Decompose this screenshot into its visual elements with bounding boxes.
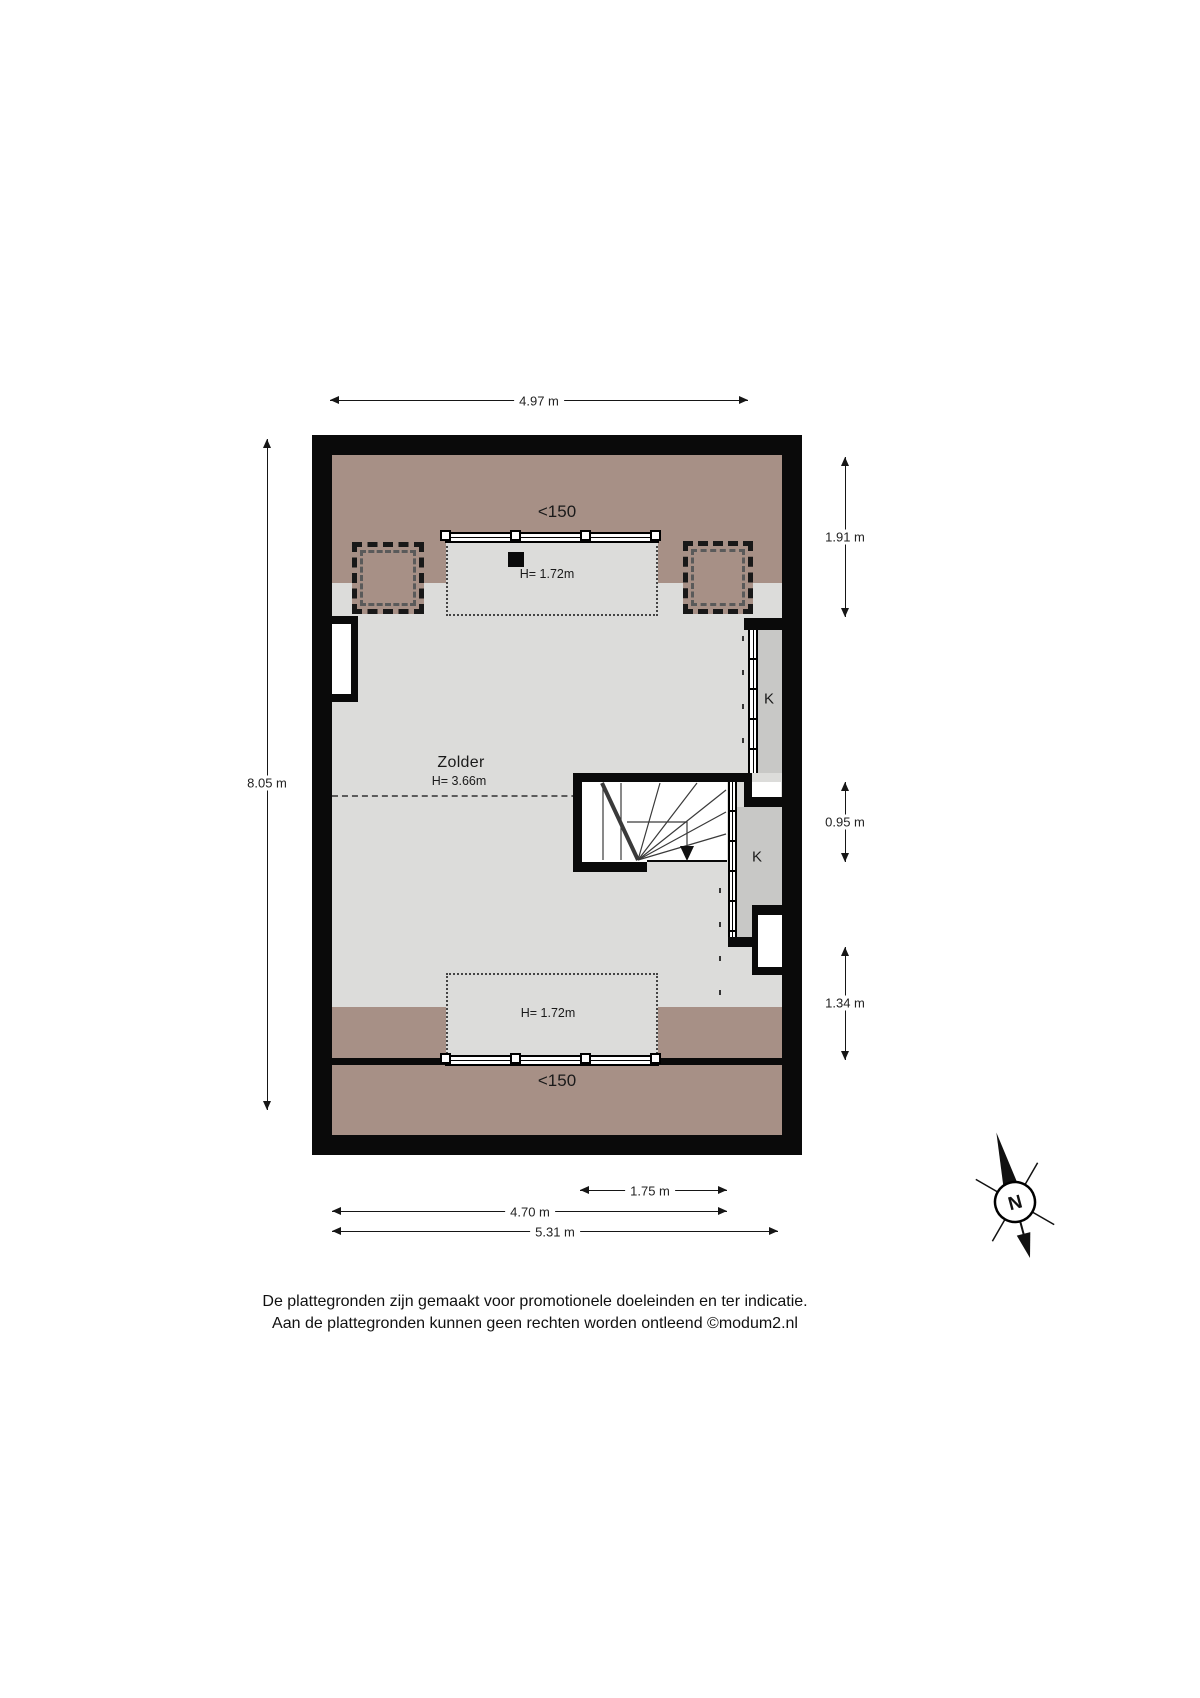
dim-right-upper: 1.91 m (820, 530, 870, 545)
arrow-left-icon (332, 1207, 341, 1215)
arrow-down-icon (841, 608, 849, 617)
dormer-top-height-label: H= 1.72m (520, 567, 575, 581)
arrow-down-icon (263, 1101, 271, 1110)
compass-south-tail (1017, 1232, 1037, 1260)
arrow-up-icon (841, 782, 849, 791)
dormer-bottom-height-label: H= 1.72m (521, 1006, 576, 1020)
headroom-note-bottom: <150 (538, 1071, 576, 1091)
room-height-label: H= 3.66m (432, 774, 487, 788)
arrow-left-icon (330, 396, 339, 404)
closet-lower-label: K (752, 849, 762, 866)
arrow-right-icon (769, 1227, 778, 1235)
dim-bottom-inner: 4.70 m (505, 1205, 555, 1220)
floorplan-page: N Zolder H= 3.66m <150 <150 H= 1.72m H= … (0, 0, 1200, 1698)
arrow-right-icon (718, 1186, 727, 1194)
closet-upper-label: K (764, 691, 774, 708)
arrow-right-icon (718, 1207, 727, 1215)
arrow-right-icon (739, 396, 748, 404)
dim-left-height: 8.05 m (242, 776, 292, 791)
arrow-down-icon (841, 853, 849, 862)
dim-right-middle: 0.95 m (820, 815, 870, 830)
disclaimer-line-1: De plattegronden zijn gemaakt voor promo… (262, 1293, 807, 1311)
stair-down-arrow (680, 846, 694, 861)
dim-bottom-outer: 5.31 m (530, 1225, 580, 1240)
arrow-up-icon (841, 457, 849, 466)
dim-top-width: 4.97 m (514, 394, 564, 409)
room-label: Zolder (437, 754, 484, 772)
compass-rose: N (965, 1124, 1060, 1266)
arrow-left-icon (580, 1186, 589, 1194)
plan-linework: N (0, 0, 1200, 1698)
disclaimer-line-2: Aan de plattegronden kunnen geen rechten… (272, 1315, 798, 1333)
arrow-up-icon (841, 947, 849, 956)
dim-line-left (267, 439, 268, 1110)
arrow-left-icon (332, 1227, 341, 1235)
arrow-up-icon (263, 439, 271, 448)
dim-bottom-window: 1.75 m (625, 1184, 675, 1199)
headroom-note-top: <150 (538, 502, 576, 522)
dim-right-lower: 1.34 m (820, 996, 870, 1011)
arrow-down-icon (841, 1051, 849, 1060)
